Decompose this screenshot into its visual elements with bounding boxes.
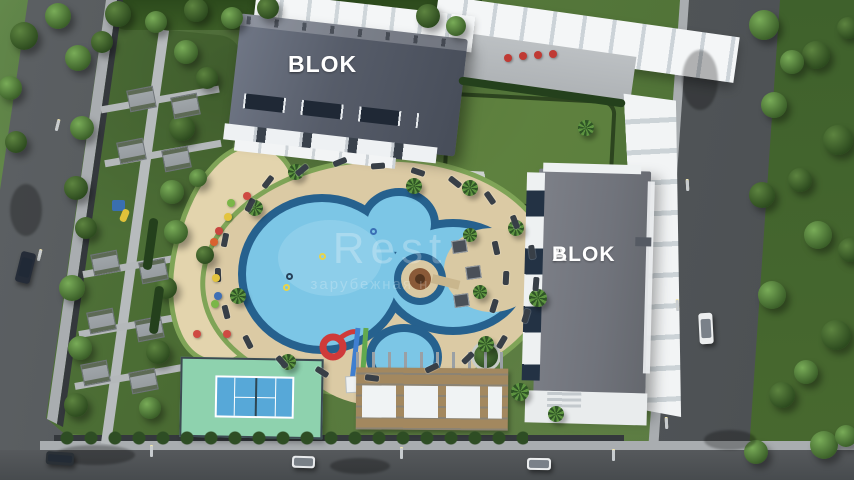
garden-seating-patio xyxy=(86,308,117,335)
playground-toy xyxy=(223,330,231,338)
garden-seating-patio xyxy=(126,86,157,113)
tree xyxy=(45,3,71,29)
tree xyxy=(788,168,812,192)
tree xyxy=(64,176,88,200)
playground-toy xyxy=(193,330,201,338)
street-lamp xyxy=(37,250,43,261)
tree xyxy=(257,0,279,19)
garden-seating-patio xyxy=(170,93,201,120)
tree xyxy=(802,41,830,69)
tree xyxy=(184,0,208,22)
playground-toy xyxy=(214,292,222,300)
tree xyxy=(835,425,854,447)
tree xyxy=(780,50,804,74)
tree xyxy=(446,16,466,36)
garden-seating-patio xyxy=(161,146,192,173)
sun-lounger xyxy=(261,175,274,190)
tree xyxy=(91,31,113,53)
site-plan-render: B BLOK A BLOK Rest зарубежная н xyxy=(0,0,854,480)
street-lamp xyxy=(676,300,680,311)
watermark-text: Rest xyxy=(240,224,540,274)
street-lamp xyxy=(400,448,403,459)
sun-lounger xyxy=(448,175,463,188)
tree xyxy=(749,182,775,208)
garden-seating-patio xyxy=(80,360,111,387)
playground-toy xyxy=(211,300,219,308)
sun-lounger xyxy=(221,304,230,319)
tree xyxy=(160,180,184,204)
tree xyxy=(749,10,779,40)
tree xyxy=(837,17,854,39)
tree xyxy=(145,11,167,33)
car-glass xyxy=(701,319,712,338)
tree xyxy=(70,116,94,140)
sun-lounger xyxy=(365,374,380,382)
tree xyxy=(5,131,27,153)
palm-tree xyxy=(462,180,478,196)
tree xyxy=(196,67,218,89)
tree xyxy=(794,360,818,384)
sun-lounger xyxy=(489,298,499,313)
tree xyxy=(416,4,440,28)
playground-toy xyxy=(549,50,557,58)
sun-lounger xyxy=(521,308,531,323)
pool-cabana xyxy=(453,293,470,308)
street-lamp xyxy=(55,120,61,131)
palm-tree xyxy=(478,336,494,352)
tree xyxy=(64,393,88,417)
watermark-subtext: зарубежная н xyxy=(205,276,535,293)
tree xyxy=(804,221,832,249)
playground-toy xyxy=(210,238,218,246)
palm-tree xyxy=(406,178,422,194)
tree xyxy=(146,340,170,364)
tree xyxy=(65,45,91,71)
garden-seating-patio xyxy=(128,368,159,395)
street-lamp xyxy=(612,450,615,461)
street-lamp xyxy=(665,418,669,429)
tree xyxy=(810,431,838,459)
white-car-bottom-road-2 xyxy=(527,458,551,470)
playground-toy xyxy=(534,51,542,59)
tree xyxy=(823,125,853,155)
sun-lounger xyxy=(496,334,508,349)
dark-car-left-road xyxy=(14,251,36,285)
sun-lounger xyxy=(461,351,475,365)
car-glass xyxy=(48,454,72,463)
tree xyxy=(769,382,795,408)
tree xyxy=(105,1,131,27)
tree-shadow xyxy=(10,184,42,236)
tree xyxy=(75,217,97,239)
car-glass xyxy=(529,460,549,468)
sun-lounger xyxy=(410,167,425,177)
tree xyxy=(821,320,851,350)
playground-toy xyxy=(224,213,232,221)
tree xyxy=(221,7,243,29)
tree xyxy=(59,275,85,301)
playground-toy xyxy=(504,54,512,62)
sun-lounger xyxy=(424,362,439,374)
tree xyxy=(10,22,38,50)
palm-tree xyxy=(548,406,564,422)
sun-lounger xyxy=(484,191,497,206)
sun-lounger xyxy=(221,233,230,248)
sun-lounger xyxy=(242,334,254,349)
palm-tree xyxy=(578,120,594,136)
palm-tree xyxy=(511,383,529,401)
tree-shadow xyxy=(682,50,718,110)
hedge xyxy=(458,76,625,107)
tree xyxy=(68,336,92,360)
sun-lounger xyxy=(371,163,385,170)
street-lamp xyxy=(686,180,690,191)
garden-seating-patio xyxy=(116,138,147,165)
tree-shadow xyxy=(704,430,756,450)
tree xyxy=(758,281,786,309)
sun-lounger xyxy=(314,366,329,379)
tree xyxy=(761,92,787,118)
tree xyxy=(838,238,854,262)
tree xyxy=(196,246,214,264)
white-car-bottom-road-1 xyxy=(292,456,315,469)
tree xyxy=(189,169,207,187)
playground-toy xyxy=(243,192,251,200)
tree xyxy=(174,40,198,64)
garden-seating-patio xyxy=(90,250,121,277)
tree xyxy=(139,397,161,419)
white-car-right-road xyxy=(698,313,714,345)
playground-toy xyxy=(215,227,223,235)
tree xyxy=(164,220,188,244)
playground-toy xyxy=(519,52,527,60)
playground-toy xyxy=(227,199,235,207)
car-glass xyxy=(294,458,313,466)
dark-car-bottom-road xyxy=(46,451,75,466)
car-glass xyxy=(18,257,33,278)
street-lamp xyxy=(150,446,153,457)
tree xyxy=(169,115,195,141)
tree xyxy=(0,76,22,100)
sun-lounger xyxy=(332,157,347,168)
tree-shadow xyxy=(330,458,390,474)
